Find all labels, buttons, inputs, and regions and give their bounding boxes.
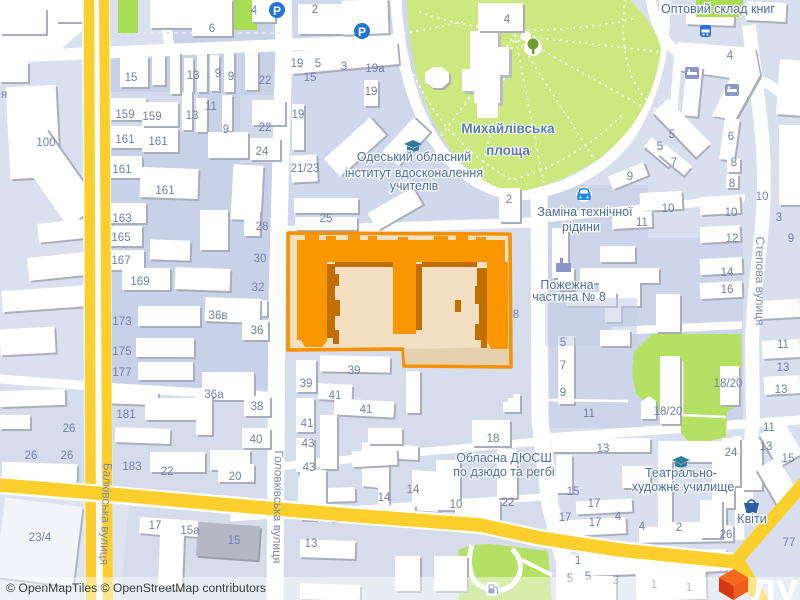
svg-text:1: 1 <box>575 555 581 567</box>
svg-text:159: 159 <box>115 109 134 121</box>
svg-text:161: 161 <box>155 185 174 197</box>
svg-text:13: 13 <box>777 362 790 374</box>
svg-text:5: 5 <box>657 141 663 153</box>
svg-text:22: 22 <box>259 122 272 134</box>
svg-text:165: 165 <box>111 232 130 244</box>
svg-text:рідини: рідини <box>562 220 600 234</box>
svg-text:8: 8 <box>731 157 737 169</box>
svg-text:24: 24 <box>725 447 738 459</box>
svg-text:30: 30 <box>254 253 267 265</box>
svg-text:43: 43 <box>302 438 315 450</box>
svg-text:4: 4 <box>504 14 511 26</box>
svg-text:17: 17 <box>588 498 601 510</box>
svg-text:12: 12 <box>726 233 739 245</box>
svg-text:40: 40 <box>250 434 263 446</box>
svg-text:8: 8 <box>729 178 735 190</box>
svg-text:19а: 19а <box>365 63 385 75</box>
svg-text:36в: 36в <box>209 310 228 322</box>
svg-text:лун: лун <box>751 566 800 600</box>
svg-text:4: 4 <box>727 50 734 62</box>
svg-text:163: 163 <box>112 213 131 225</box>
svg-text:9: 9 <box>560 387 566 399</box>
svg-text:11: 11 <box>205 101 217 113</box>
svg-text:2: 2 <box>676 522 682 534</box>
svg-text:26: 26 <box>61 450 74 462</box>
svg-text:13: 13 <box>760 441 773 453</box>
svg-text:28: 28 <box>256 221 269 233</box>
svg-text:20: 20 <box>229 471 242 483</box>
svg-text:21/23: 21/23 <box>291 163 320 175</box>
svg-text:43: 43 <box>303 462 316 474</box>
svg-text:Головківська вулиця: Головківська вулиця <box>270 450 286 563</box>
svg-text:9: 9 <box>228 71 234 83</box>
svg-text:13: 13 <box>305 538 318 550</box>
svg-text:15: 15 <box>304 72 317 84</box>
svg-text:художнє училище: художнє училище <box>632 480 734 494</box>
svg-text:14: 14 <box>721 267 734 279</box>
svg-text:11: 11 <box>763 422 775 434</box>
svg-text:22: 22 <box>161 466 174 478</box>
svg-text:32: 32 <box>252 282 265 294</box>
svg-text:5: 5 <box>669 129 675 141</box>
svg-text:8: 8 <box>513 309 519 321</box>
svg-text:26: 26 <box>720 529 733 541</box>
svg-text:13: 13 <box>597 443 610 455</box>
svg-text:41: 41 <box>360 404 373 416</box>
svg-text:частина № 8: частина № 8 <box>532 290 606 304</box>
svg-text:36: 36 <box>251 325 264 337</box>
svg-text:4: 4 <box>639 521 646 533</box>
svg-text:19: 19 <box>292 109 305 121</box>
svg-text:11: 11 <box>583 408 595 420</box>
svg-text:161: 161 <box>148 136 167 148</box>
svg-text:Одеський обласний: Одеський обласний <box>357 150 471 164</box>
svg-text:22: 22 <box>502 497 515 509</box>
svg-text:Оптовий склад книг: Оптовий склад книг <box>661 2 775 16</box>
svg-text:18/20: 18/20 <box>714 378 743 390</box>
svg-text:7: 7 <box>560 360 566 372</box>
svg-text:9: 9 <box>215 68 221 80</box>
svg-text:26: 26 <box>25 450 38 462</box>
svg-text:Михайлівська: Михайлівська <box>461 121 555 136</box>
svg-text:24: 24 <box>256 146 269 158</box>
svg-text:41: 41 <box>329 390 342 402</box>
svg-text:я: я <box>1 87 8 101</box>
svg-text:100: 100 <box>36 137 55 149</box>
svg-text:38: 38 <box>251 401 264 413</box>
svg-text:2: 2 <box>506 194 512 206</box>
svg-text:6: 6 <box>209 23 215 35</box>
svg-text:13: 13 <box>186 110 199 122</box>
svg-text:по дзюдо та регбі: по дзюдо та регбі <box>453 465 554 479</box>
svg-text:173: 173 <box>112 316 131 328</box>
svg-text:22: 22 <box>259 75 272 87</box>
svg-text:Степова вулиця: Степова вулиця <box>753 236 767 325</box>
svg-text:175: 175 <box>112 346 131 358</box>
svg-text:17: 17 <box>559 512 572 524</box>
svg-text:169: 169 <box>130 276 149 288</box>
svg-text:Заміна технічної: Заміна технічної <box>537 205 633 219</box>
svg-text:183: 183 <box>122 461 141 473</box>
svg-text:4: 4 <box>615 511 622 523</box>
svg-text:13: 13 <box>187 70 200 82</box>
svg-text:Квіти: Квіти <box>737 512 766 526</box>
svg-text:5: 5 <box>560 337 566 349</box>
svg-text:161: 161 <box>112 164 131 176</box>
svg-text:P: P <box>273 4 281 18</box>
svg-text:3: 3 <box>341 61 347 73</box>
svg-text:161: 161 <box>115 134 134 146</box>
svg-text:P: P <box>358 25 366 39</box>
svg-text:6: 6 <box>728 131 734 143</box>
svg-text:4: 4 <box>251 5 258 17</box>
svg-text:17: 17 <box>149 520 162 532</box>
svg-text:39: 39 <box>348 365 361 377</box>
svg-text:© OpenMapTiles © OpenStreetMap: © OpenMapTiles © OpenStreetMap contribut… <box>6 581 266 595</box>
svg-text:36а: 36а <box>204 389 224 401</box>
svg-text:7: 7 <box>671 157 677 169</box>
svg-text:15: 15 <box>228 535 241 547</box>
svg-text:181: 181 <box>116 409 135 421</box>
svg-text:77: 77 <box>783 537 796 549</box>
svg-text:10: 10 <box>725 207 738 219</box>
svg-text:15а: 15а <box>180 525 200 537</box>
svg-text:39: 39 <box>300 378 313 390</box>
svg-text:11: 11 <box>636 217 648 229</box>
svg-text:11: 11 <box>777 339 789 351</box>
svg-text:10: 10 <box>450 499 463 511</box>
svg-text:учителів: учителів <box>390 179 439 193</box>
svg-text:3: 3 <box>776 212 782 224</box>
svg-text:9: 9 <box>223 124 229 136</box>
svg-text:159: 159 <box>142 111 161 123</box>
svg-text:19: 19 <box>291 58 304 70</box>
svg-text:15: 15 <box>782 453 795 465</box>
svg-text:Обласна ДЮСШ: Обласна ДЮСШ <box>456 451 552 465</box>
svg-text:177: 177 <box>112 367 131 379</box>
svg-text:19: 19 <box>365 86 378 98</box>
svg-text:площа: площа <box>486 143 530 158</box>
svg-text:9: 9 <box>627 171 633 183</box>
svg-text:14: 14 <box>378 492 391 504</box>
svg-text:18/20: 18/20 <box>654 406 683 418</box>
svg-text:13: 13 <box>775 384 788 396</box>
svg-text:26: 26 <box>63 423 76 435</box>
svg-text:18: 18 <box>487 433 500 445</box>
svg-text:10: 10 <box>756 191 769 203</box>
svg-text:23/4: 23/4 <box>29 532 52 544</box>
svg-text:інститут вдосконалення: інститут вдосконалення <box>345 166 483 180</box>
svg-text:10: 10 <box>662 203 675 215</box>
svg-text:41: 41 <box>301 418 314 430</box>
svg-text:17: 17 <box>589 517 602 529</box>
svg-text:Театрально-: Театрально- <box>645 466 717 480</box>
svg-text:15: 15 <box>567 486 580 498</box>
svg-text:5: 5 <box>315 58 321 70</box>
svg-text:9: 9 <box>788 233 794 245</box>
svg-text:15: 15 <box>125 72 138 84</box>
svg-text:16: 16 <box>721 284 734 296</box>
svg-text:2: 2 <box>312 4 318 16</box>
svg-text:167: 167 <box>111 255 130 267</box>
svg-text:25: 25 <box>320 213 333 225</box>
svg-text:14: 14 <box>407 484 420 496</box>
